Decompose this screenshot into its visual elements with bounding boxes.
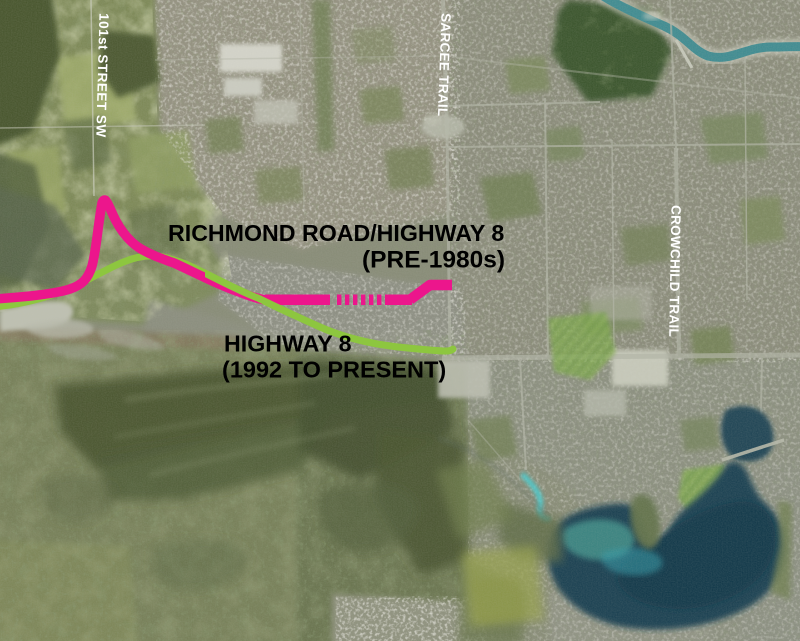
- svg-text:(PRE-1980s): (PRE-1980s): [362, 247, 505, 274]
- svg-text:CROWCHILD TRAIL: CROWCHILD TRAIL: [666, 205, 683, 337]
- svg-text:(1992 TO PRESENT): (1992 TO PRESENT): [222, 357, 446, 383]
- svg-text:HIGHWAY 8: HIGHWAY 8: [224, 331, 352, 357]
- svg-text:RICHMOND ROAD/HIGHWAY 8: RICHMOND ROAD/HIGHWAY 8: [168, 220, 504, 246]
